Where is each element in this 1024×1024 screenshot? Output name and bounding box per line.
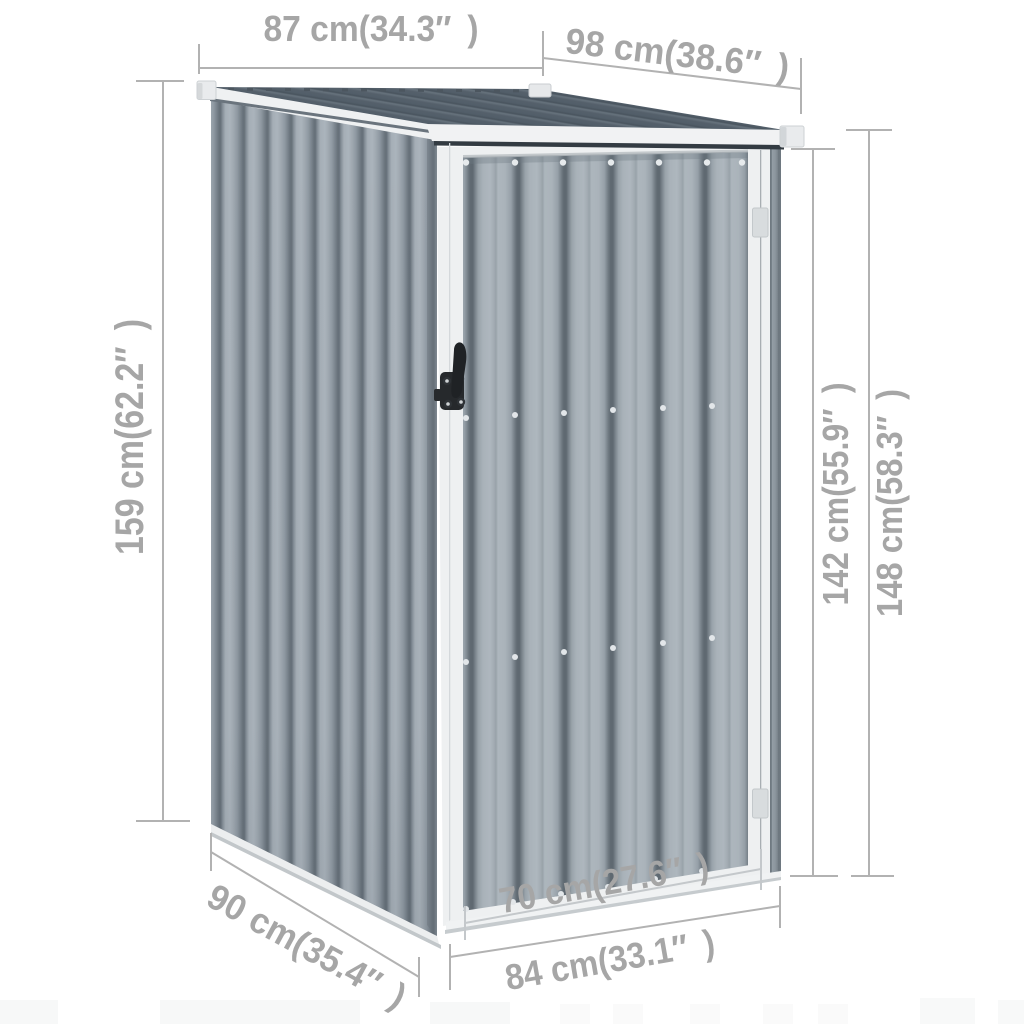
svg-text:142 cm(55.9″ ): 142 cm(55.9″ ) — [815, 383, 856, 606]
svg-text:159 cm(62.2″ ): 159 cm(62.2″ ) — [108, 319, 152, 555]
svg-text:148 cm(58.3″ ): 148 cm(58.3″ ) — [869, 389, 910, 617]
svg-text:87 cm(34.3″ ): 87 cm(34.3″ ) — [264, 8, 479, 49]
